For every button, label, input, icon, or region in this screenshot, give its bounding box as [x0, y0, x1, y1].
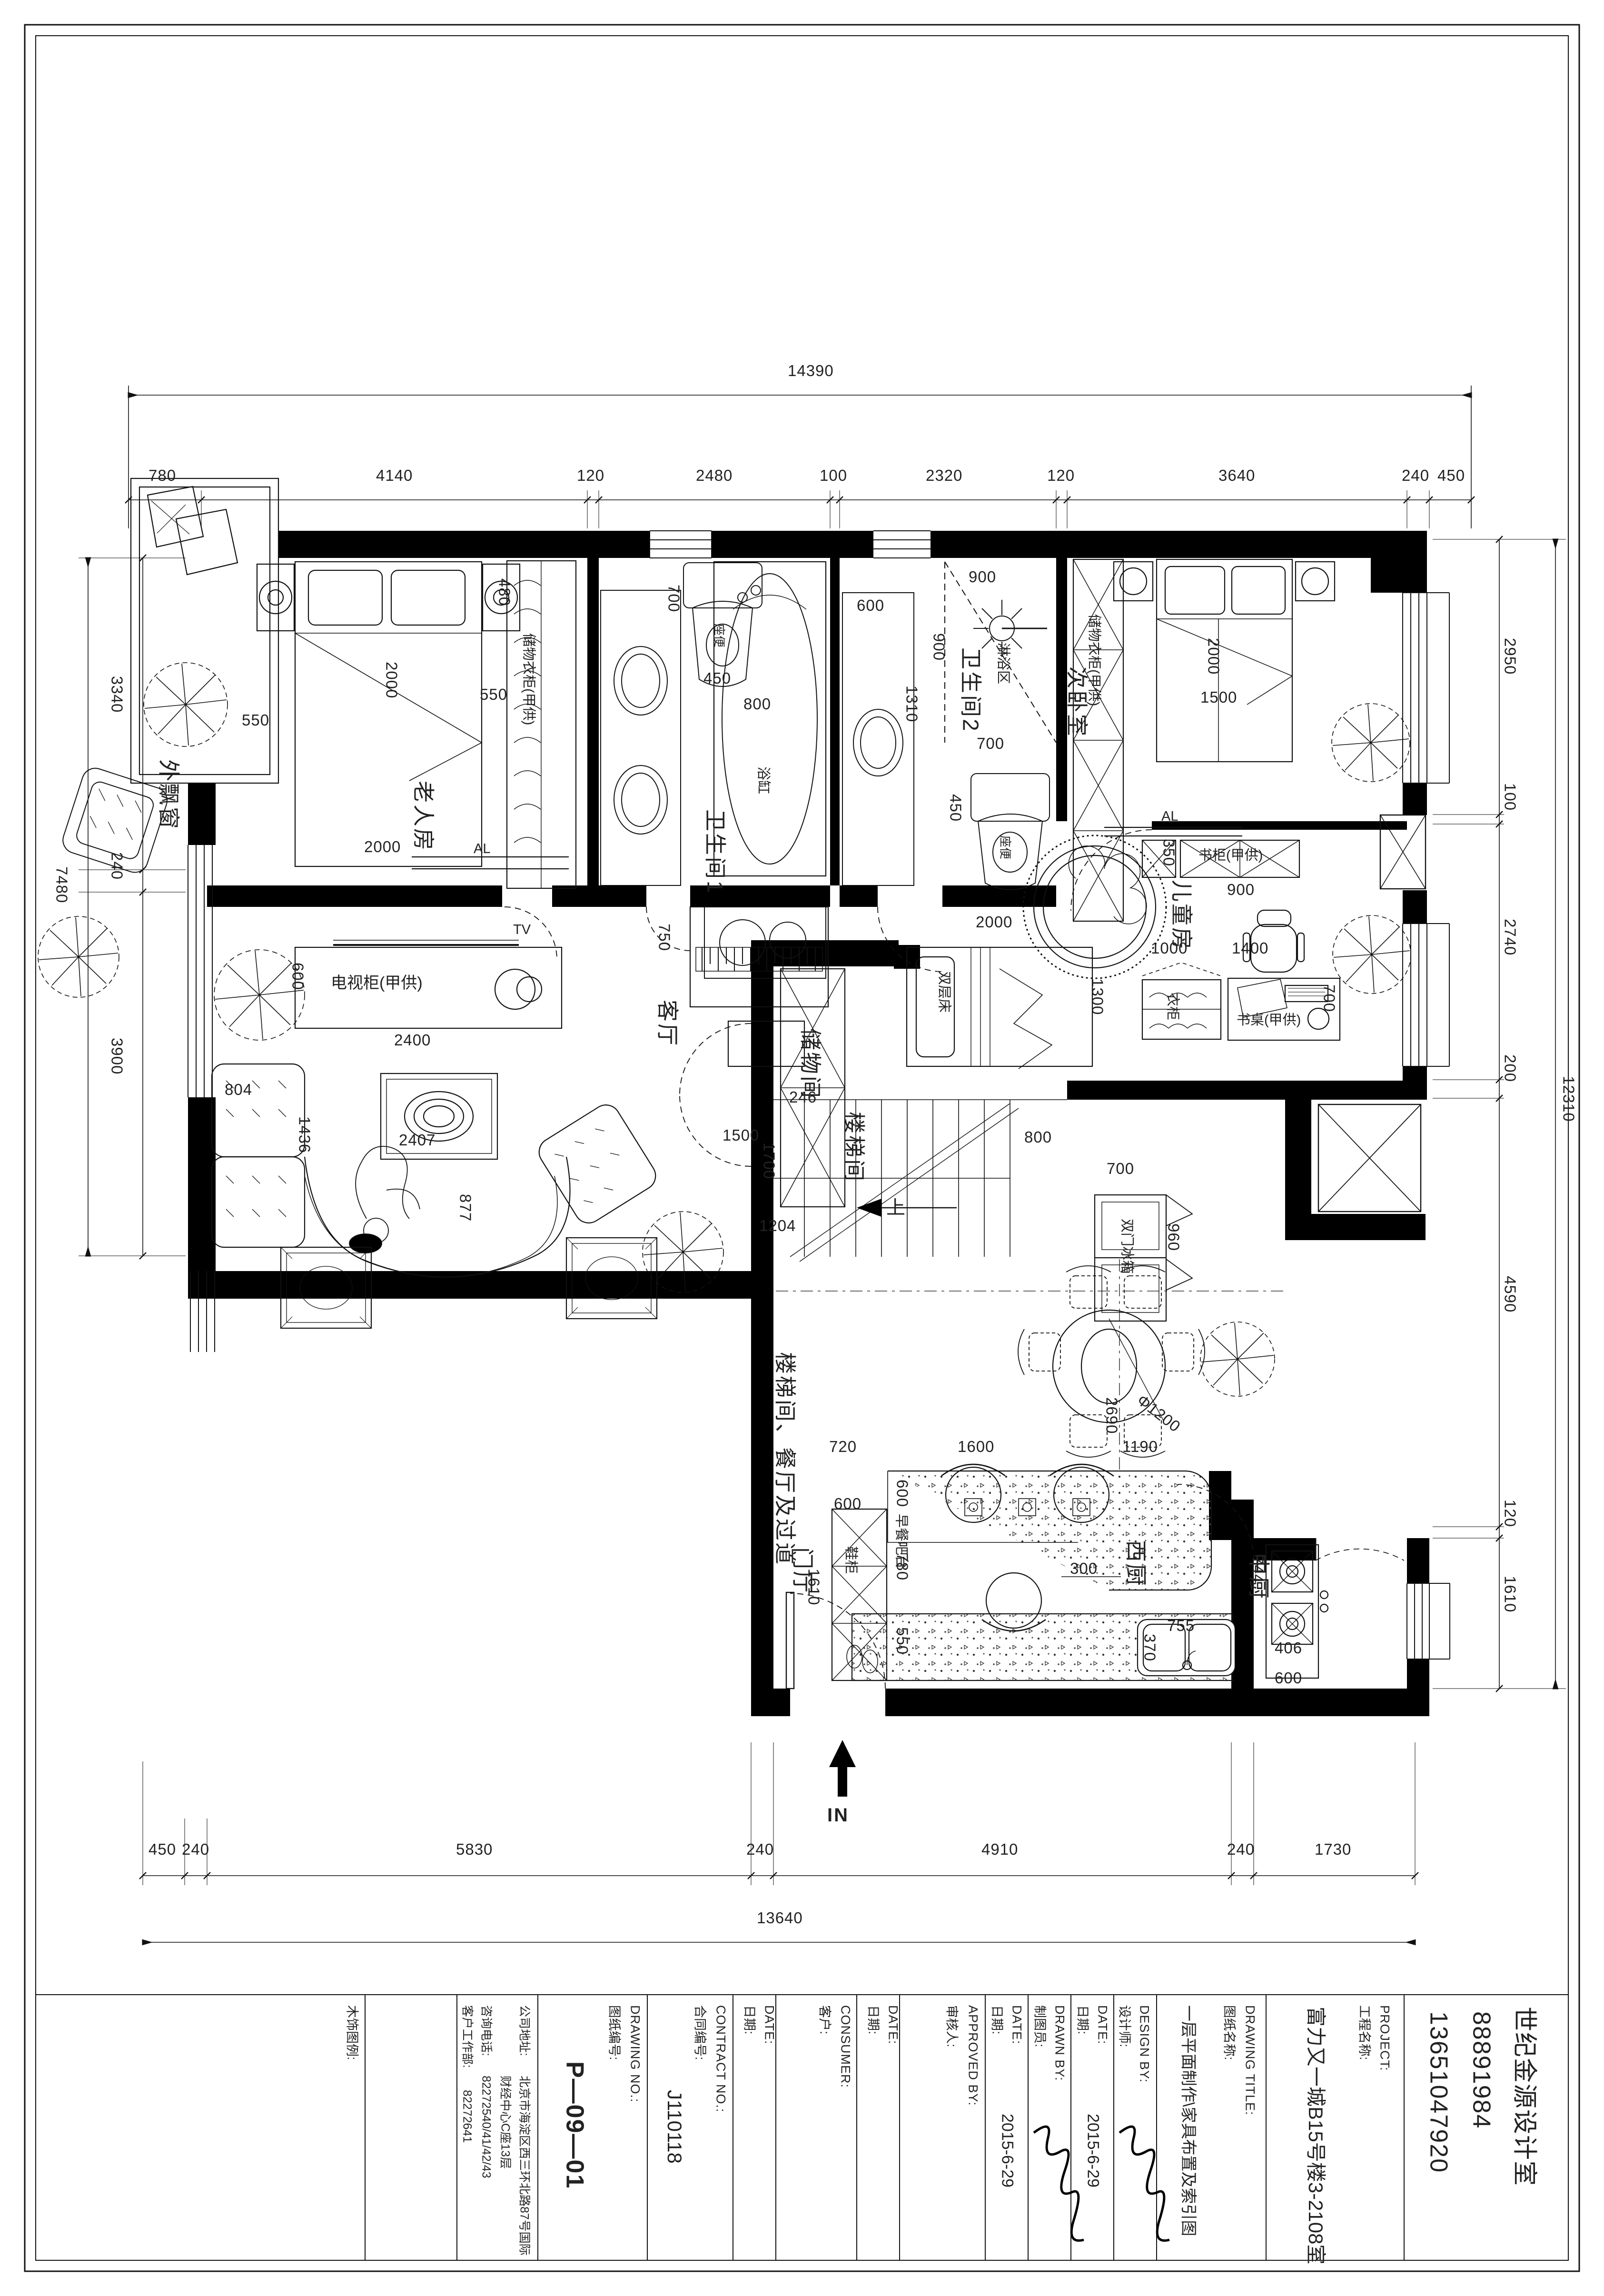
dim-top-3: 2480	[696, 467, 733, 484]
dim-right-6: 1610	[1502, 1576, 1518, 1612]
tb-date4-cn: 日期:	[743, 2005, 756, 2035]
room-master: 老人房	[412, 781, 435, 852]
pd-master-550r: 550	[480, 686, 507, 703]
designer-signature	[1119, 2127, 1169, 2240]
room-stair: 楼梯间	[842, 1112, 865, 1183]
pd-wk-600v: 600	[894, 1480, 911, 1507]
walls	[188, 531, 1429, 1716]
label-tv: TV	[513, 923, 531, 937]
tb-date2-value: 2015-6-29	[999, 2114, 1016, 2187]
pd-sink-755: 755	[1167, 1618, 1195, 1634]
tb-contract-cn: 合同编号:	[693, 2005, 706, 2060]
pd-stair-1700: 1700	[761, 1143, 777, 1179]
pd-bunk-2000: 2000	[976, 914, 1012, 931]
pd-bath2-900h: 900	[969, 569, 996, 586]
room-wkitchen: 西厨	[1124, 1540, 1147, 1588]
dim-right-4: 4590	[1502, 1276, 1518, 1312]
label-toilet2: 座便	[999, 835, 1011, 859]
dim-top-0: 780	[149, 467, 176, 484]
label-toilet1: 座便	[713, 624, 725, 647]
drawing-sheet: 14390 780 4140 120 2480 100 2320 120 364…	[0, 0, 1604, 2296]
pd-table-2690: 2690	[1103, 1397, 1120, 1434]
pd-bookcase-350: 350	[1160, 839, 1177, 866]
draftsman-signature	[1034, 2127, 1084, 2240]
dim-right-3: 200	[1502, 1054, 1518, 1082]
dim-right-2: 2740	[1502, 919, 1518, 955]
pd-wk-1190: 1190	[1122, 1439, 1158, 1455]
tb-dept-label: 客户工作部:	[461, 2005, 473, 2068]
tb-tel-value: 82272540/41/42/43	[480, 2076, 492, 2178]
tb-contract-en: CONTRACT NO.:	[714, 2005, 727, 2113]
tb-project-cn: 工程名称:	[1357, 2005, 1371, 2060]
pd-bed2-1500: 1500	[1200, 689, 1237, 706]
dim-top-9: 450	[1437, 467, 1465, 484]
dim-left-0: 3340	[109, 676, 125, 713]
pd-ck-744: 744	[1249, 1556, 1266, 1583]
room-stair-dining: 楼梯间、餐厅及过道	[773, 1352, 796, 1566]
dim-top-8: 240	[1402, 467, 1429, 484]
tb-studio-name: 世纪金源设计室	[1511, 2007, 1537, 2187]
tb-approved-cn: 审核人:	[945, 2005, 958, 2048]
tb-dept-value: 82272641	[461, 2090, 473, 2143]
tb-date4-en: DATE:	[762, 2005, 776, 2045]
dim-bot-0: 450	[149, 1841, 176, 1858]
dim-right-1: 100	[1502, 783, 1518, 811]
label-bunk-bed: 双层床	[937, 971, 951, 1013]
tb-addr-line2: 财经中心C座13层	[499, 2076, 511, 2169]
dim-top-5: 2320	[926, 467, 962, 484]
tb-date1-value: 2015-6-29	[1084, 2114, 1101, 2187]
dim-top-1: 4140	[376, 467, 413, 484]
tb-consumer-en: CONSUMER:	[839, 2005, 852, 2088]
pd-shoe-1610: 1610	[805, 1569, 822, 1605]
dim-top-7: 3640	[1218, 467, 1255, 484]
tb-drawn-cn: 制图员:	[1033, 2005, 1046, 2048]
label-al2: AL	[1161, 809, 1178, 824]
pd-shoe-600: 600	[834, 1496, 861, 1512]
label-shoe-cabinet: 鞋柜	[843, 1546, 858, 1574]
pd-piano-750: 750	[656, 924, 673, 951]
tb-tel-label: 咨询电话:	[480, 2005, 492, 2056]
dim-left-1: 240	[109, 852, 125, 880]
pd-bath2-450: 450	[947, 794, 964, 822]
tb-drawn-en: DRAWN BY:	[1053, 2005, 1066, 2081]
pd-fridge-700: 700	[1107, 1161, 1134, 1177]
pd-wk-720: 720	[829, 1439, 857, 1455]
entry-door-leaf	[786, 1592, 794, 1689]
tb-title-cn: 图纸名称:	[1222, 2005, 1236, 2060]
tb-dno-en: DRAWING NO.:	[628, 2005, 642, 2103]
dim-top-6: 120	[1047, 467, 1075, 484]
tb-dno-cn: 图纸编号:	[607, 2005, 621, 2060]
tb-project-value: 富力又一城B15号楼3-2108室	[1305, 2007, 1326, 2265]
tb-studio-phone2: 13651047920	[1426, 2011, 1452, 2173]
pd-wk-300: 300	[1070, 1560, 1098, 1577]
room-bath2: 卫生间2	[959, 647, 982, 733]
tb-studio-phone1: 88891984	[1468, 2011, 1495, 2129]
dim-bot-6: 1730	[1315, 1841, 1351, 1858]
label-closet-master: 储物衣柜(甲供)	[521, 633, 535, 725]
elevator-shaft	[1318, 815, 1426, 1212]
pd-stair-800: 800	[1024, 1129, 1052, 1146]
pd-wk-550: 550	[894, 1627, 911, 1655]
pd-tv-2400: 2400	[394, 1032, 431, 1049]
tb-addr-line1: 北京市海淀区西三环北路87号国际	[518, 2076, 530, 2256]
pd-bath2-1310: 1310	[903, 686, 920, 722]
pd-sofa-1436: 1436	[296, 1116, 313, 1153]
dim-top-2: 120	[577, 467, 604, 484]
pd-ck-600: 600	[1275, 1670, 1302, 1687]
pd-wk-1600: 1600	[958, 1439, 994, 1455]
tb-date3-cn: 日期:	[866, 2005, 880, 2035]
dim-left-total: 7480	[53, 866, 70, 903]
pd-master-bed-l: 2000	[383, 662, 400, 698]
dim-bot-2: 5830	[456, 1841, 493, 1858]
bedroom2-furniture	[1073, 559, 1335, 921]
tb-design-cn: 设计师:	[1118, 2005, 1131, 2048]
label-wardrobe-kids: 衣柜	[1165, 993, 1179, 1020]
room-living: 客厅	[656, 1000, 679, 1047]
pd-sofa-804: 804	[225, 1082, 252, 1098]
tb-title-en: DRAWING TITLE:	[1243, 2005, 1257, 2116]
storage-stair	[773, 969, 1067, 1262]
tb-design-en: DESIGN BY:	[1138, 2005, 1151, 2083]
pd-stair-246: 246	[789, 1089, 817, 1106]
tb-addr-label: 公司地址:	[518, 2005, 530, 2056]
pd-tub-800: 800	[743, 696, 771, 713]
dim-bot-5: 240	[1227, 1841, 1255, 1858]
floor-plan-linework	[0, 0, 1604, 2296]
pd-bath1-700: 700	[665, 585, 682, 612]
pd-kids-700: 700	[1321, 984, 1337, 1012]
pd-kids-1000: 1000	[1151, 940, 1188, 957]
pd-bed2-2000: 2000	[1205, 638, 1222, 675]
tb-date2-en: DATE:	[1010, 2005, 1023, 2045]
label-al1: AL	[474, 842, 490, 856]
tb-contract-value: J110118	[664, 2090, 685, 2164]
tb-legend-label: 木饰图例:	[345, 2005, 358, 2060]
pd-fridge-960: 960	[1165, 1223, 1182, 1251]
dim-bottom-total: 13640	[757, 1910, 803, 1927]
pd-master-550l: 550	[242, 712, 269, 729]
tb-project-en: PROJECT:	[1378, 2005, 1391, 2071]
dim-right-0: 2950	[1502, 638, 1518, 675]
pd-bath2-700: 700	[977, 736, 1004, 752]
fridge	[1095, 1195, 1192, 1321]
room-bath1: 卫生间1	[703, 809, 726, 895]
label-bookcase: 书柜(甲供)	[1198, 848, 1263, 863]
label-stair-up: 上	[886, 1198, 905, 1218]
room-bed2: 次卧室	[1065, 666, 1088, 738]
dim-top-total: 14390	[788, 363, 834, 379]
pd-pass-1204: 1204	[759, 1218, 796, 1234]
bay-window	[131, 478, 278, 783]
pd-kids-1400: 1400	[1232, 940, 1268, 957]
title-block-grid	[36, 1995, 1568, 2260]
pd-bath2-900v: 900	[931, 633, 947, 661]
pd-bath1-450: 450	[703, 670, 731, 687]
dim-bot-1: 240	[182, 1841, 209, 1858]
pd-bookcase-900: 900	[1227, 882, 1255, 898]
pd-sofa-877: 877	[457, 1194, 474, 1222]
tb-approved-en: APPROVED BY:	[966, 2005, 980, 2106]
label-shower-zone: 淋浴区	[996, 643, 1010, 684]
dim-right-5: 120	[1502, 1500, 1518, 1527]
room-bay-window: 外飘窗	[157, 759, 180, 831]
pd-ck-406: 406	[1275, 1640, 1302, 1657]
label-tv-cabinet: 电视柜(甲供)	[331, 975, 423, 992]
pd-bath2-600: 600	[857, 597, 884, 614]
tb-consumer-cn: 客户:	[818, 2005, 831, 2035]
tb-dno-value: P—09—01	[562, 2061, 588, 2189]
dim-bot-3: 240	[746, 1841, 774, 1858]
pd-piano-1500: 1500	[723, 1127, 759, 1144]
pd-master-480: 480	[496, 578, 513, 606]
pd-kids-1300: 1300	[1089, 978, 1106, 1015]
dim-bot-4: 4910	[981, 1841, 1018, 1858]
label-desk: 书桌(甲供)	[1237, 1013, 1301, 1027]
dim-left-2: 3900	[109, 1038, 125, 1074]
label-bathtub: 浴缸	[756, 766, 770, 794]
tb-date1-cn: 日期:	[1076, 2005, 1089, 2035]
pd-tv-600: 600	[289, 963, 306, 990]
label-closet-bed2: 储物衣柜(甲供)	[1087, 614, 1101, 706]
tb-date1-en: DATE:	[1096, 2005, 1109, 2045]
pd-master-bed-w: 2000	[364, 839, 401, 855]
label-entry-in: IN	[827, 1805, 849, 1825]
dim-right-total: 12310	[1560, 1076, 1577, 1122]
tb-date3-en: DATE:	[886, 2005, 900, 2045]
pd-wk-780: 780	[894, 1553, 911, 1580]
west-kitchen	[832, 1464, 1235, 1680]
entry-arrow	[829, 1740, 856, 1797]
pd-sofa-2407: 2407	[399, 1132, 436, 1149]
tb-title-value: 一层平面制作\家具布置及索引图	[1179, 2005, 1197, 2236]
label-fridge: 双门冰箱	[1119, 1219, 1134, 1274]
dim-top-4: 100	[820, 467, 847, 484]
pd-sink-370: 370	[1141, 1634, 1158, 1661]
tb-date2-cn: 日期:	[990, 2005, 1003, 2035]
